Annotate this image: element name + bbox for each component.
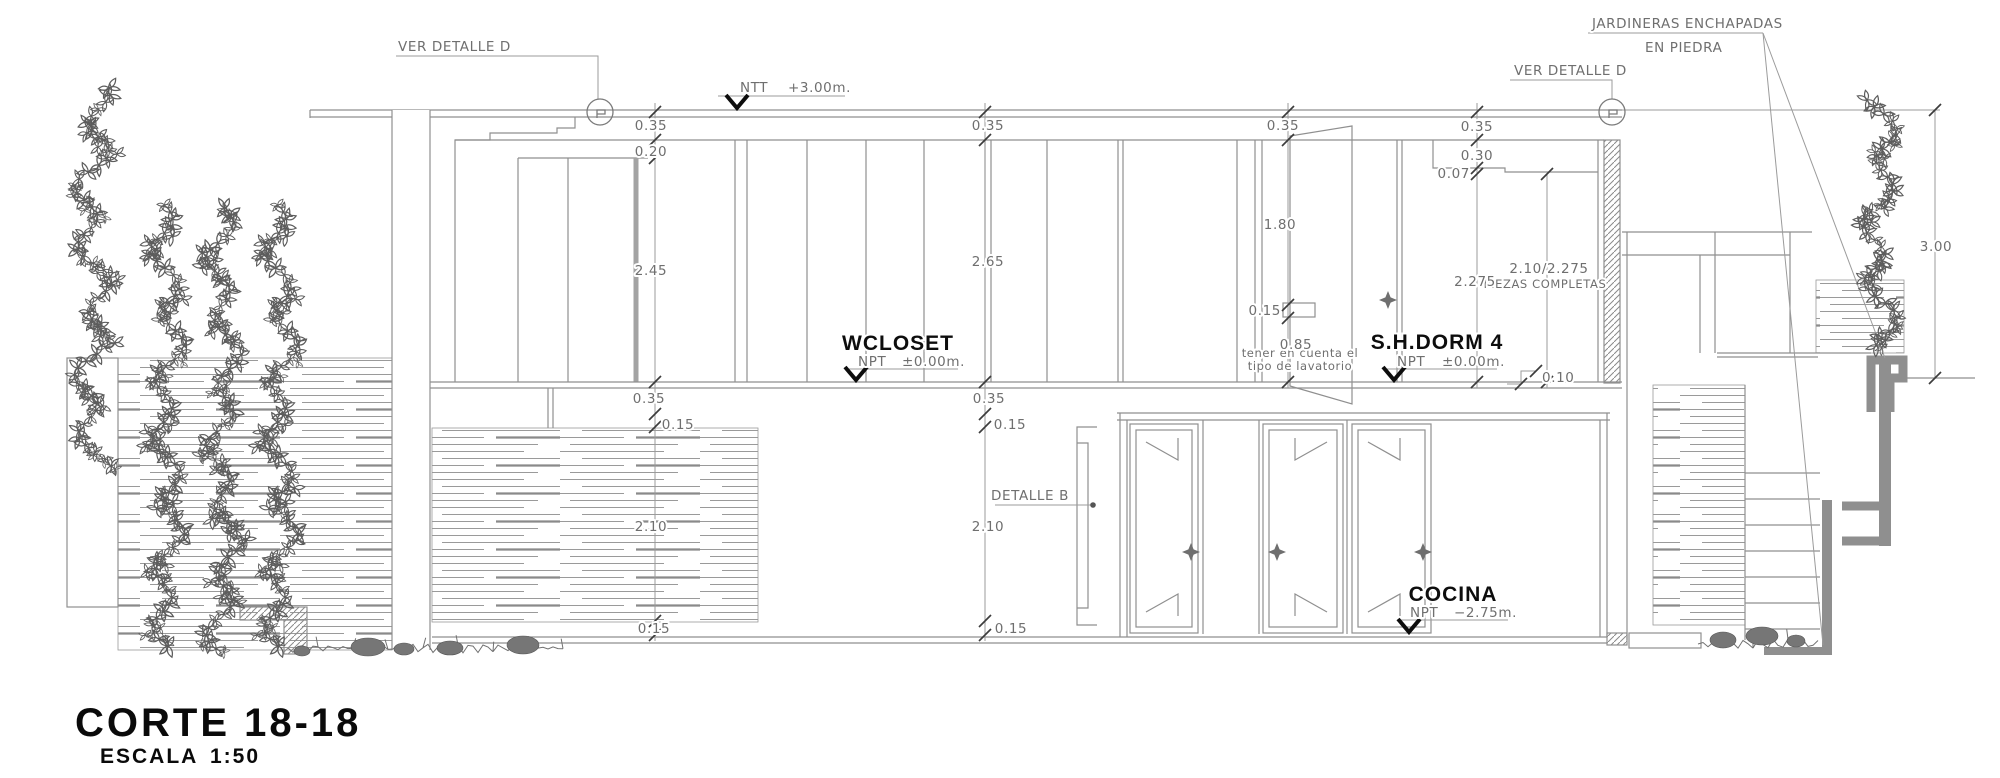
dim-label: 0.15 xyxy=(662,417,694,433)
callout-piezas-1: 2.10/2.275 xyxy=(1509,261,1588,277)
callout-ver-detalle-right: VER DETALLE D xyxy=(1514,63,1627,79)
room-label-cocina: COCINA xyxy=(1409,583,1498,606)
section-drawing-sheet: VER DETALLE D VER DETALLE D JARDINERAS E… xyxy=(0,0,2000,778)
dim-label: 2.10 xyxy=(972,519,1004,535)
dim-label: 0.15 xyxy=(1249,303,1281,319)
dim-label: 0.07 xyxy=(1438,166,1470,182)
room-label-shdorm4: S.H.DORM 4 xyxy=(1371,331,1504,354)
dim-label: 2.65 xyxy=(972,254,1004,270)
leader-dot xyxy=(1090,502,1096,508)
door-handle-icon xyxy=(1414,543,1432,561)
room-label-wcloset: WCLOSET xyxy=(842,332,954,355)
callout-ver-detalle-left: VER DETALLE D xyxy=(398,39,511,55)
ntt-label: NTT xyxy=(740,80,768,96)
callout-piezas-2: PIEZAS COMPLETAS xyxy=(1484,277,1607,291)
npt-value: −2.75m. xyxy=(1454,605,1517,621)
level-arrow-icon xyxy=(726,95,748,108)
ntt-value: +3.00m. xyxy=(788,80,851,96)
dim-label: 1.80 xyxy=(1264,217,1296,233)
door-panel xyxy=(1263,424,1343,633)
dim-label: 0.15 xyxy=(994,417,1026,433)
corte-18-18-drawing: VER DETALLE D VER DETALLE D JARDINERAS E… xyxy=(0,0,2000,778)
dim-label: 0.35 xyxy=(1267,118,1299,134)
note-lavatorio-2: tipo de lavatorio xyxy=(1248,359,1353,373)
door-handle-icon xyxy=(1268,543,1286,561)
right-garden-ground xyxy=(1717,353,1975,378)
npt-label: NPT xyxy=(858,354,886,370)
left-garden-wall xyxy=(392,110,430,650)
dim-label: 0.35 xyxy=(972,118,1004,134)
door-handle-icon xyxy=(1379,291,1397,309)
door-panel xyxy=(1130,424,1198,633)
dim-label: 0.15 xyxy=(995,621,1027,637)
title-block: CORTE 18-18 ESCALA 1:50 xyxy=(75,701,361,768)
dim-label: 2.275 xyxy=(1454,274,1496,290)
scale-value: 1:50 xyxy=(210,745,260,768)
stone-planters xyxy=(1764,360,1903,651)
callout-jardineras-2: EN PIEDRA xyxy=(1645,40,1723,56)
room-labels: WCLOSET NPT ±0.00m. S.H.DORM 4 NPT ±0.00… xyxy=(842,331,1517,621)
dim-label: 0.20 xyxy=(635,144,667,160)
scale-label: ESCALA xyxy=(100,745,198,768)
npt-value: ±0.00m. xyxy=(902,354,965,370)
npt-label: NPT xyxy=(1410,605,1438,621)
kitchen-floor-slab xyxy=(432,633,1701,648)
roof-slab xyxy=(310,110,1622,118)
detail-marker-icon xyxy=(587,99,613,125)
detalle-b-channel xyxy=(1077,427,1097,625)
npt-label: NPT xyxy=(1397,354,1425,370)
sheet-title: CORTE 18-18 xyxy=(75,701,361,745)
right-wall-hatched xyxy=(1604,140,1620,383)
dim-label: 0.35 xyxy=(635,118,667,134)
kitchen-door-frame xyxy=(1117,413,1610,637)
exterior-steps xyxy=(1745,385,1820,640)
dim-label: 0.85 xyxy=(1280,337,1312,353)
callout-jardineras-1: JARDINERAS ENCHAPADAS xyxy=(1591,16,1783,32)
callout-detalle-b: DETALLE B xyxy=(991,488,1069,504)
dim-label: 3.00 xyxy=(1920,239,1952,255)
dim-label: 0.35 xyxy=(973,391,1005,407)
npt-value: ±0.00m. xyxy=(1442,354,1505,370)
detail-marker-icon xyxy=(1599,99,1625,125)
dim-label: 2.45 xyxy=(635,263,667,279)
door-handle-icon xyxy=(1182,543,1200,561)
dim-label: 2.10 xyxy=(635,519,667,535)
dim-label: 0.15 xyxy=(638,621,670,637)
dim-label: 0.35 xyxy=(633,391,665,407)
dim-label: 0.10 xyxy=(1542,370,1574,386)
dim-label: 0.30 xyxy=(1461,148,1493,164)
dim-label: 0.35 xyxy=(1461,119,1493,135)
rocks xyxy=(294,627,1805,656)
